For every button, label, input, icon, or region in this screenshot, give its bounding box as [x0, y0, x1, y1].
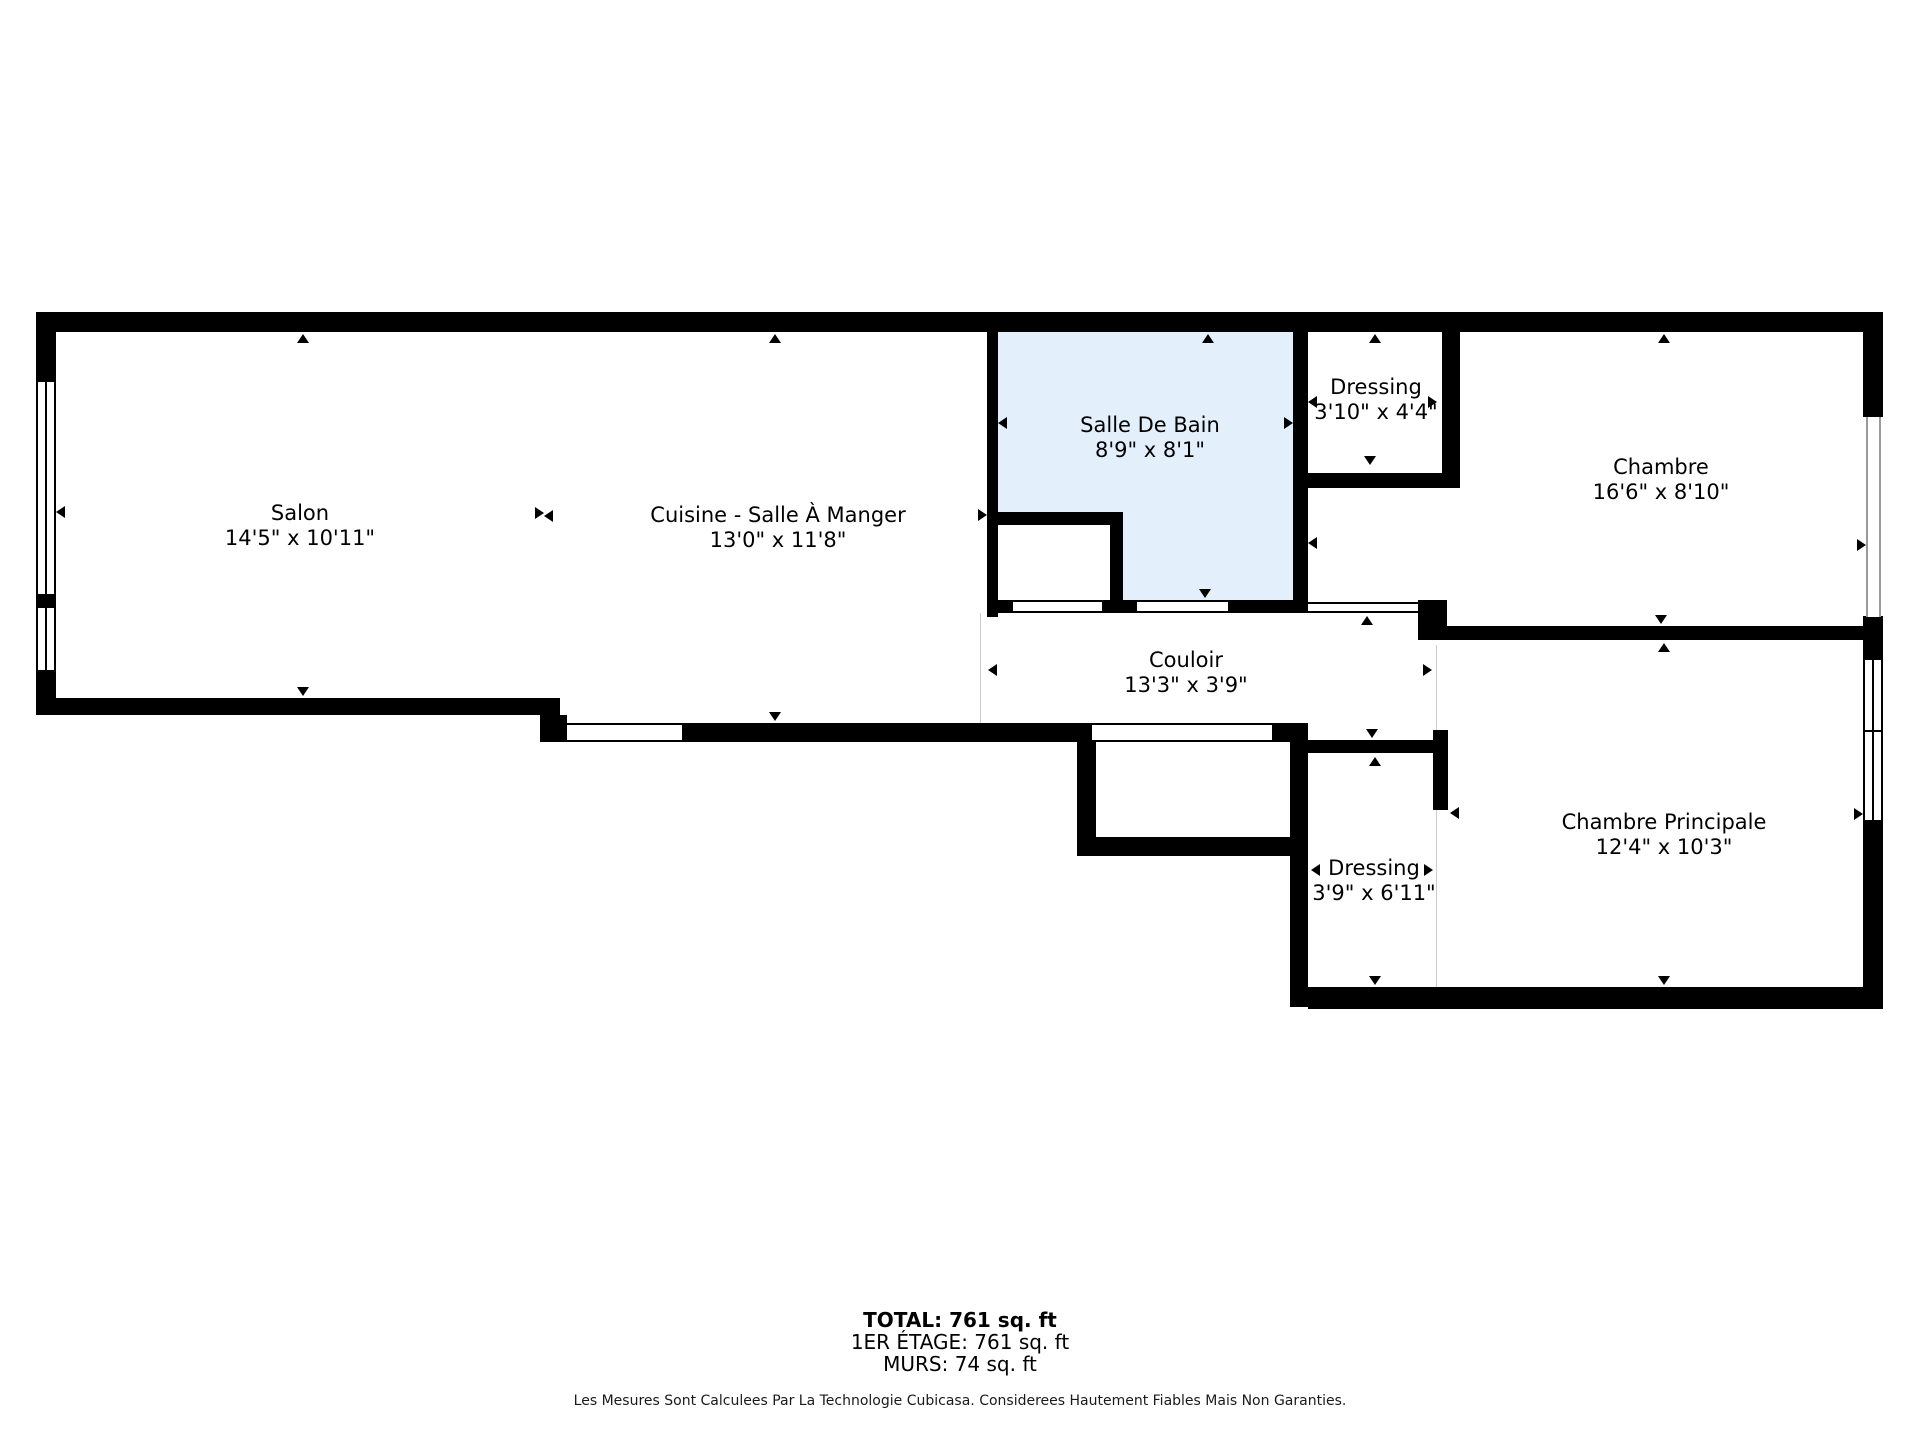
arrow-left-icon: [544, 510, 553, 522]
room-dims: 16'6" x 8'10": [1593, 480, 1730, 505]
window-mullion: [45, 382, 47, 594]
room-label-dressing-haut: Dressing 3'10" x 4'4": [1314, 375, 1437, 425]
room-dims: 8'9" x 8'1": [1080, 438, 1220, 463]
room-label-cuisine: Cuisine - Salle À Manger 13'0" x 11'8": [650, 503, 905, 553]
arrow-down-icon: [1658, 976, 1670, 985]
room-name: Salon: [225, 501, 375, 526]
room-boundary-line: [980, 613, 981, 723]
bathroom-notch-floor: [998, 525, 1110, 600]
wall-segment: [36, 698, 560, 715]
arrow-right-icon: [1857, 539, 1866, 551]
arrow-right-icon: [1284, 417, 1293, 429]
room-dims: 13'0" x 11'8": [650, 528, 905, 553]
room-name: Chambre Principale: [1562, 810, 1767, 835]
arrow-down-icon: [1364, 456, 1376, 465]
wall-segment: [36, 312, 56, 382]
window-icon: [1863, 658, 1883, 732]
arrow-up-icon: [769, 334, 781, 343]
room-dims: 3'9" x 6'11": [1312, 881, 1435, 906]
room-name: Couloir: [1124, 648, 1247, 673]
door-opening: [1013, 600, 1102, 613]
wall-segment: [1433, 730, 1448, 810]
wall-segment: [987, 512, 1123, 525]
room-boundary-line: [1436, 810, 1437, 987]
wall-segment: [1102, 600, 1137, 613]
arrow-left-icon: [998, 417, 1007, 429]
wall-segment: [540, 715, 567, 742]
room-label-salle-de-bain: Salle De Bain 8'9" x 8'1": [1080, 413, 1220, 463]
window-mullion: [1872, 660, 1874, 730]
wall-segment: [1077, 742, 1096, 837]
walls-area: MURS: 74 sq. ft: [851, 1353, 1069, 1375]
room-label-dressing-bas: Dressing 3'9" x 6'11": [1312, 856, 1435, 906]
wall-segment: [1308, 740, 1433, 753]
window-mullion: [1872, 732, 1874, 820]
room-dims: 3'10" x 4'4": [1314, 400, 1437, 425]
door-opening: [1137, 600, 1228, 613]
wall-segment: [1418, 600, 1447, 640]
room-name: Dressing: [1314, 375, 1437, 400]
wall-segment: [1863, 312, 1883, 417]
wall-segment: [1442, 312, 1460, 488]
window-icon: [1863, 730, 1883, 822]
room-label-chambre-principale: Chambre Principale 12'4" x 10'3": [1562, 810, 1767, 860]
room-name: Chambre: [1593, 455, 1730, 480]
wall-segment: [682, 723, 1092, 742]
glass-wall-icon: [1866, 417, 1881, 617]
door-opening: [1092, 723, 1272, 742]
room-dims: 14'5" x 10'11": [225, 526, 375, 551]
wall-segment: [1272, 723, 1308, 742]
wall-segment: [1077, 837, 1308, 856]
arrow-right-icon: [1423, 664, 1432, 676]
wall-segment: [1308, 473, 1460, 488]
wall-segment: [987, 322, 998, 617]
arrow-left-icon: [1308, 537, 1317, 549]
arrow-right-icon: [978, 509, 987, 521]
arrow-down-icon: [769, 712, 781, 721]
room-name: Salle De Bain: [1080, 413, 1220, 438]
arrow-down-icon: [1199, 589, 1211, 598]
room-name: Cuisine - Salle À Manger: [650, 503, 905, 528]
arrow-left-icon: [56, 506, 65, 518]
window-mullion: [45, 608, 47, 670]
arrow-up-icon: [1658, 334, 1670, 343]
wall-segment: [36, 312, 1883, 332]
room-dims: 12'4" x 10'3": [1562, 835, 1767, 860]
wall-segment: [1293, 322, 1308, 613]
arrow-up-icon: [297, 334, 309, 343]
arrow-up-icon: [1369, 757, 1381, 766]
arrow-up-icon: [1369, 334, 1381, 343]
wall-segment: [987, 600, 1013, 613]
wall-segment: [1308, 987, 1883, 1009]
arrow-down-icon: [297, 687, 309, 696]
wall-segment: [1863, 820, 1883, 1009]
area-summary: TOTAL: 761 sq. ft 1ER ÉTAGE: 761 sq. ft …: [851, 1309, 1069, 1375]
door-opening: [567, 723, 682, 742]
room-label-couloir: Couloir 13'3" x 3'9": [1124, 648, 1247, 698]
room-name: Dressing: [1312, 856, 1435, 881]
floor-plan: Salon 14'5" x 10'11" Cuisine - Salle À M…: [0, 0, 1920, 1440]
arrow-left-icon: [988, 664, 997, 676]
floor-area: 1ER ÉTAGE: 761 sq. ft: [851, 1331, 1069, 1353]
arrow-up-icon: [1361, 616, 1373, 625]
arrow-left-icon: [1450, 807, 1459, 819]
room-label-salon: Salon 14'5" x 10'11": [225, 501, 375, 551]
room-label-chambre: Chambre 16'6" x 8'10": [1593, 455, 1730, 505]
window-icon: [36, 606, 56, 672]
arrow-up-icon: [1202, 334, 1214, 343]
arrow-down-icon: [1655, 615, 1667, 624]
wall-segment: [1863, 616, 1883, 660]
wall-segment: [1447, 626, 1883, 640]
window-icon: [36, 380, 56, 596]
arrow-down-icon: [1369, 976, 1381, 985]
arrow-right-icon: [535, 507, 544, 519]
disclaimer-text: Les Mesures Sont Calculees Par La Techno…: [574, 1393, 1347, 1409]
door-opening: [1308, 602, 1418, 613]
wall-segment: [1290, 742, 1308, 1007]
room-boundary-line: [1436, 645, 1437, 730]
total-area: TOTAL: 761 sq. ft: [851, 1309, 1069, 1331]
arrow-down-icon: [1366, 729, 1378, 738]
room-dims: 13'3" x 3'9": [1124, 673, 1247, 698]
arrow-up-icon: [1658, 643, 1670, 652]
arrow-right-icon: [1854, 808, 1863, 820]
